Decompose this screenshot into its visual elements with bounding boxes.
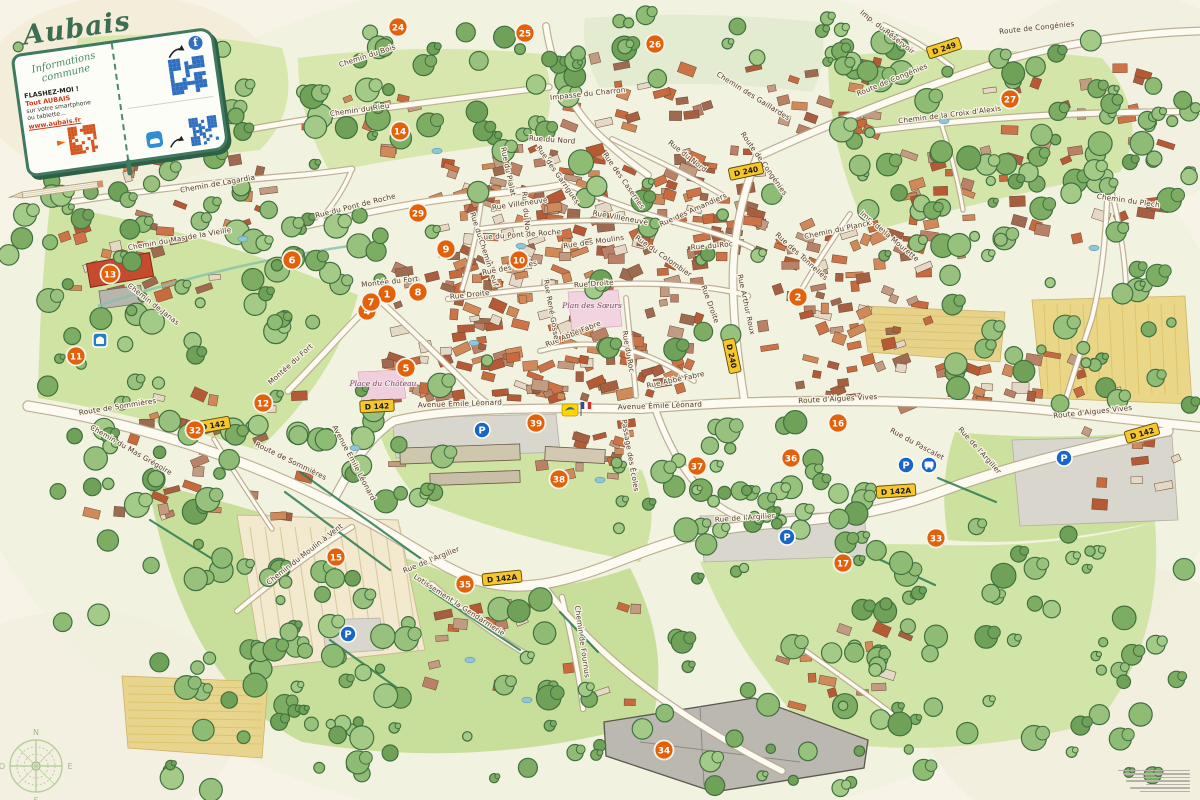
- compass-west: O: [0, 762, 5, 771]
- svg-text:P: P: [783, 532, 790, 543]
- poi-marker-25: 25: [516, 24, 535, 43]
- svg-text:15: 15: [330, 553, 342, 563]
- parking-icon: P: [340, 626, 356, 642]
- page-divider: [128, 96, 213, 109]
- svg-text:13: 13: [104, 270, 116, 280]
- place-label: Plan des Sœurs: [561, 301, 622, 310]
- open-book-illustration: Informations commune FLASHEZ-MOI ! Tout …: [10, 26, 229, 177]
- bus-icon: [921, 457, 937, 473]
- credits-line: [1118, 770, 1190, 772]
- svg-text:P: P: [1060, 453, 1067, 464]
- svg-text:P: P: [902, 460, 909, 471]
- poi-marker-36: 36: [782, 449, 801, 468]
- svg-text:27: 27: [1004, 95, 1016, 105]
- book-left-page: Informations commune FLASHEZ-MOI ! Tout …: [14, 43, 129, 174]
- poi-marker-16: 16: [829, 414, 848, 433]
- svg-text:D 142: D 142: [365, 401, 390, 411]
- poi-marker-7: 7: [362, 293, 381, 312]
- compass-east: E: [67, 762, 72, 771]
- credits-line: [1140, 791, 1190, 793]
- parking-icon: P: [474, 422, 490, 438]
- parking-icon: P: [898, 457, 914, 473]
- place-label: Place du Château: [349, 379, 417, 388]
- poi-marker-33: 33: [927, 529, 946, 548]
- svg-text:7: 7: [368, 297, 375, 308]
- svg-text:35: 35: [459, 580, 471, 590]
- curved-arrow-icon: [167, 135, 186, 149]
- road-sign: D 142A: [876, 484, 916, 499]
- poi-marker-10: 10: [510, 251, 529, 270]
- qr-code-blue-top: [168, 55, 209, 96]
- credits-line: [1124, 773, 1190, 775]
- poi-marker-35: 35: [456, 575, 475, 594]
- poi-marker-34: 34: [655, 741, 674, 760]
- svg-text:39: 39: [530, 419, 542, 429]
- credits-line: [1130, 787, 1190, 789]
- poi-marker-2: 2: [789, 288, 808, 307]
- svg-text:17: 17: [837, 559, 849, 569]
- qr-code-orange: [68, 124, 100, 156]
- poi-marker-12: 12: [254, 394, 273, 413]
- svg-text:8: 8: [415, 287, 422, 298]
- svg-text:38: 38: [553, 475, 565, 485]
- compass-north: N: [33, 728, 39, 737]
- post-office-icon: [562, 404, 578, 416]
- credits-line: [1146, 784, 1190, 786]
- compass-south: S: [33, 796, 38, 800]
- poi-marker-9: 9: [437, 240, 456, 259]
- svg-text:10: 10: [513, 256, 525, 266]
- svg-text:1: 1: [384, 289, 391, 300]
- facebook-icon: f: [188, 35, 204, 51]
- svg-text:37: 37: [691, 462, 703, 472]
- poi-marker-26: 26: [646, 35, 665, 54]
- svg-text:P: P: [478, 425, 485, 436]
- svg-text:24: 24: [392, 23, 404, 33]
- poi-marker-6: 6: [283, 251, 302, 270]
- svg-text:33: 33: [930, 534, 942, 544]
- svg-text:11: 11: [70, 352, 82, 362]
- svg-text:25: 25: [519, 29, 531, 39]
- svg-text:34: 34: [658, 746, 670, 756]
- monument-icon: [93, 333, 107, 347]
- poi-marker-39: 39: [527, 414, 546, 433]
- svg-text:29: 29: [412, 209, 424, 219]
- poi-marker-11: 11: [67, 347, 86, 366]
- svg-text:2: 2: [795, 292, 802, 303]
- legend-book: Aubais Informations commune FLASHEZ-MOI …: [2, 0, 262, 190]
- svg-text:P: P: [344, 629, 351, 640]
- poi-marker-38: 38: [550, 470, 569, 489]
- book-right-page: f: [113, 30, 226, 160]
- credits-block: [1100, 770, 1190, 793]
- poi-marker-14: 14: [391, 122, 410, 141]
- aubais-map-poster: Chemin du RieuChemin du BoisChemin des G…: [0, 0, 1200, 800]
- svg-text:5: 5: [403, 363, 410, 374]
- parking-icon: P: [779, 529, 795, 545]
- poi-marker-8: 8: [409, 283, 428, 302]
- parking-icon: P: [1056, 450, 1072, 466]
- svg-text:12: 12: [257, 399, 269, 409]
- poi-marker-29: 29: [409, 204, 428, 223]
- credits-line: [1126, 780, 1190, 782]
- svg-text:16: 16: [832, 419, 844, 429]
- credits-line: [1132, 777, 1190, 779]
- svg-text:6: 6: [289, 255, 296, 266]
- svg-text:32: 32: [189, 426, 201, 436]
- poi-marker-32: 32: [186, 421, 205, 440]
- road-sign: D 142: [360, 399, 395, 413]
- poi-marker-13: 13: [101, 265, 120, 284]
- poi-marker-27: 27: [1001, 90, 1020, 109]
- svg-text:14: 14: [394, 127, 406, 137]
- poi-marker-17: 17: [834, 554, 853, 573]
- orange-arrow-icon: ►: [56, 137, 66, 148]
- poi-marker-37: 37: [688, 457, 707, 476]
- monument-app-icon: [146, 131, 164, 149]
- qr-code-blue-bottom: [188, 115, 220, 147]
- svg-text:26: 26: [649, 40, 661, 50]
- poi-marker-15: 15: [327, 548, 346, 567]
- poi-marker-24: 24: [389, 18, 408, 37]
- svg-text:9: 9: [443, 244, 450, 255]
- poi-marker-5: 5: [397, 359, 416, 378]
- svg-text:36: 36: [785, 454, 797, 464]
